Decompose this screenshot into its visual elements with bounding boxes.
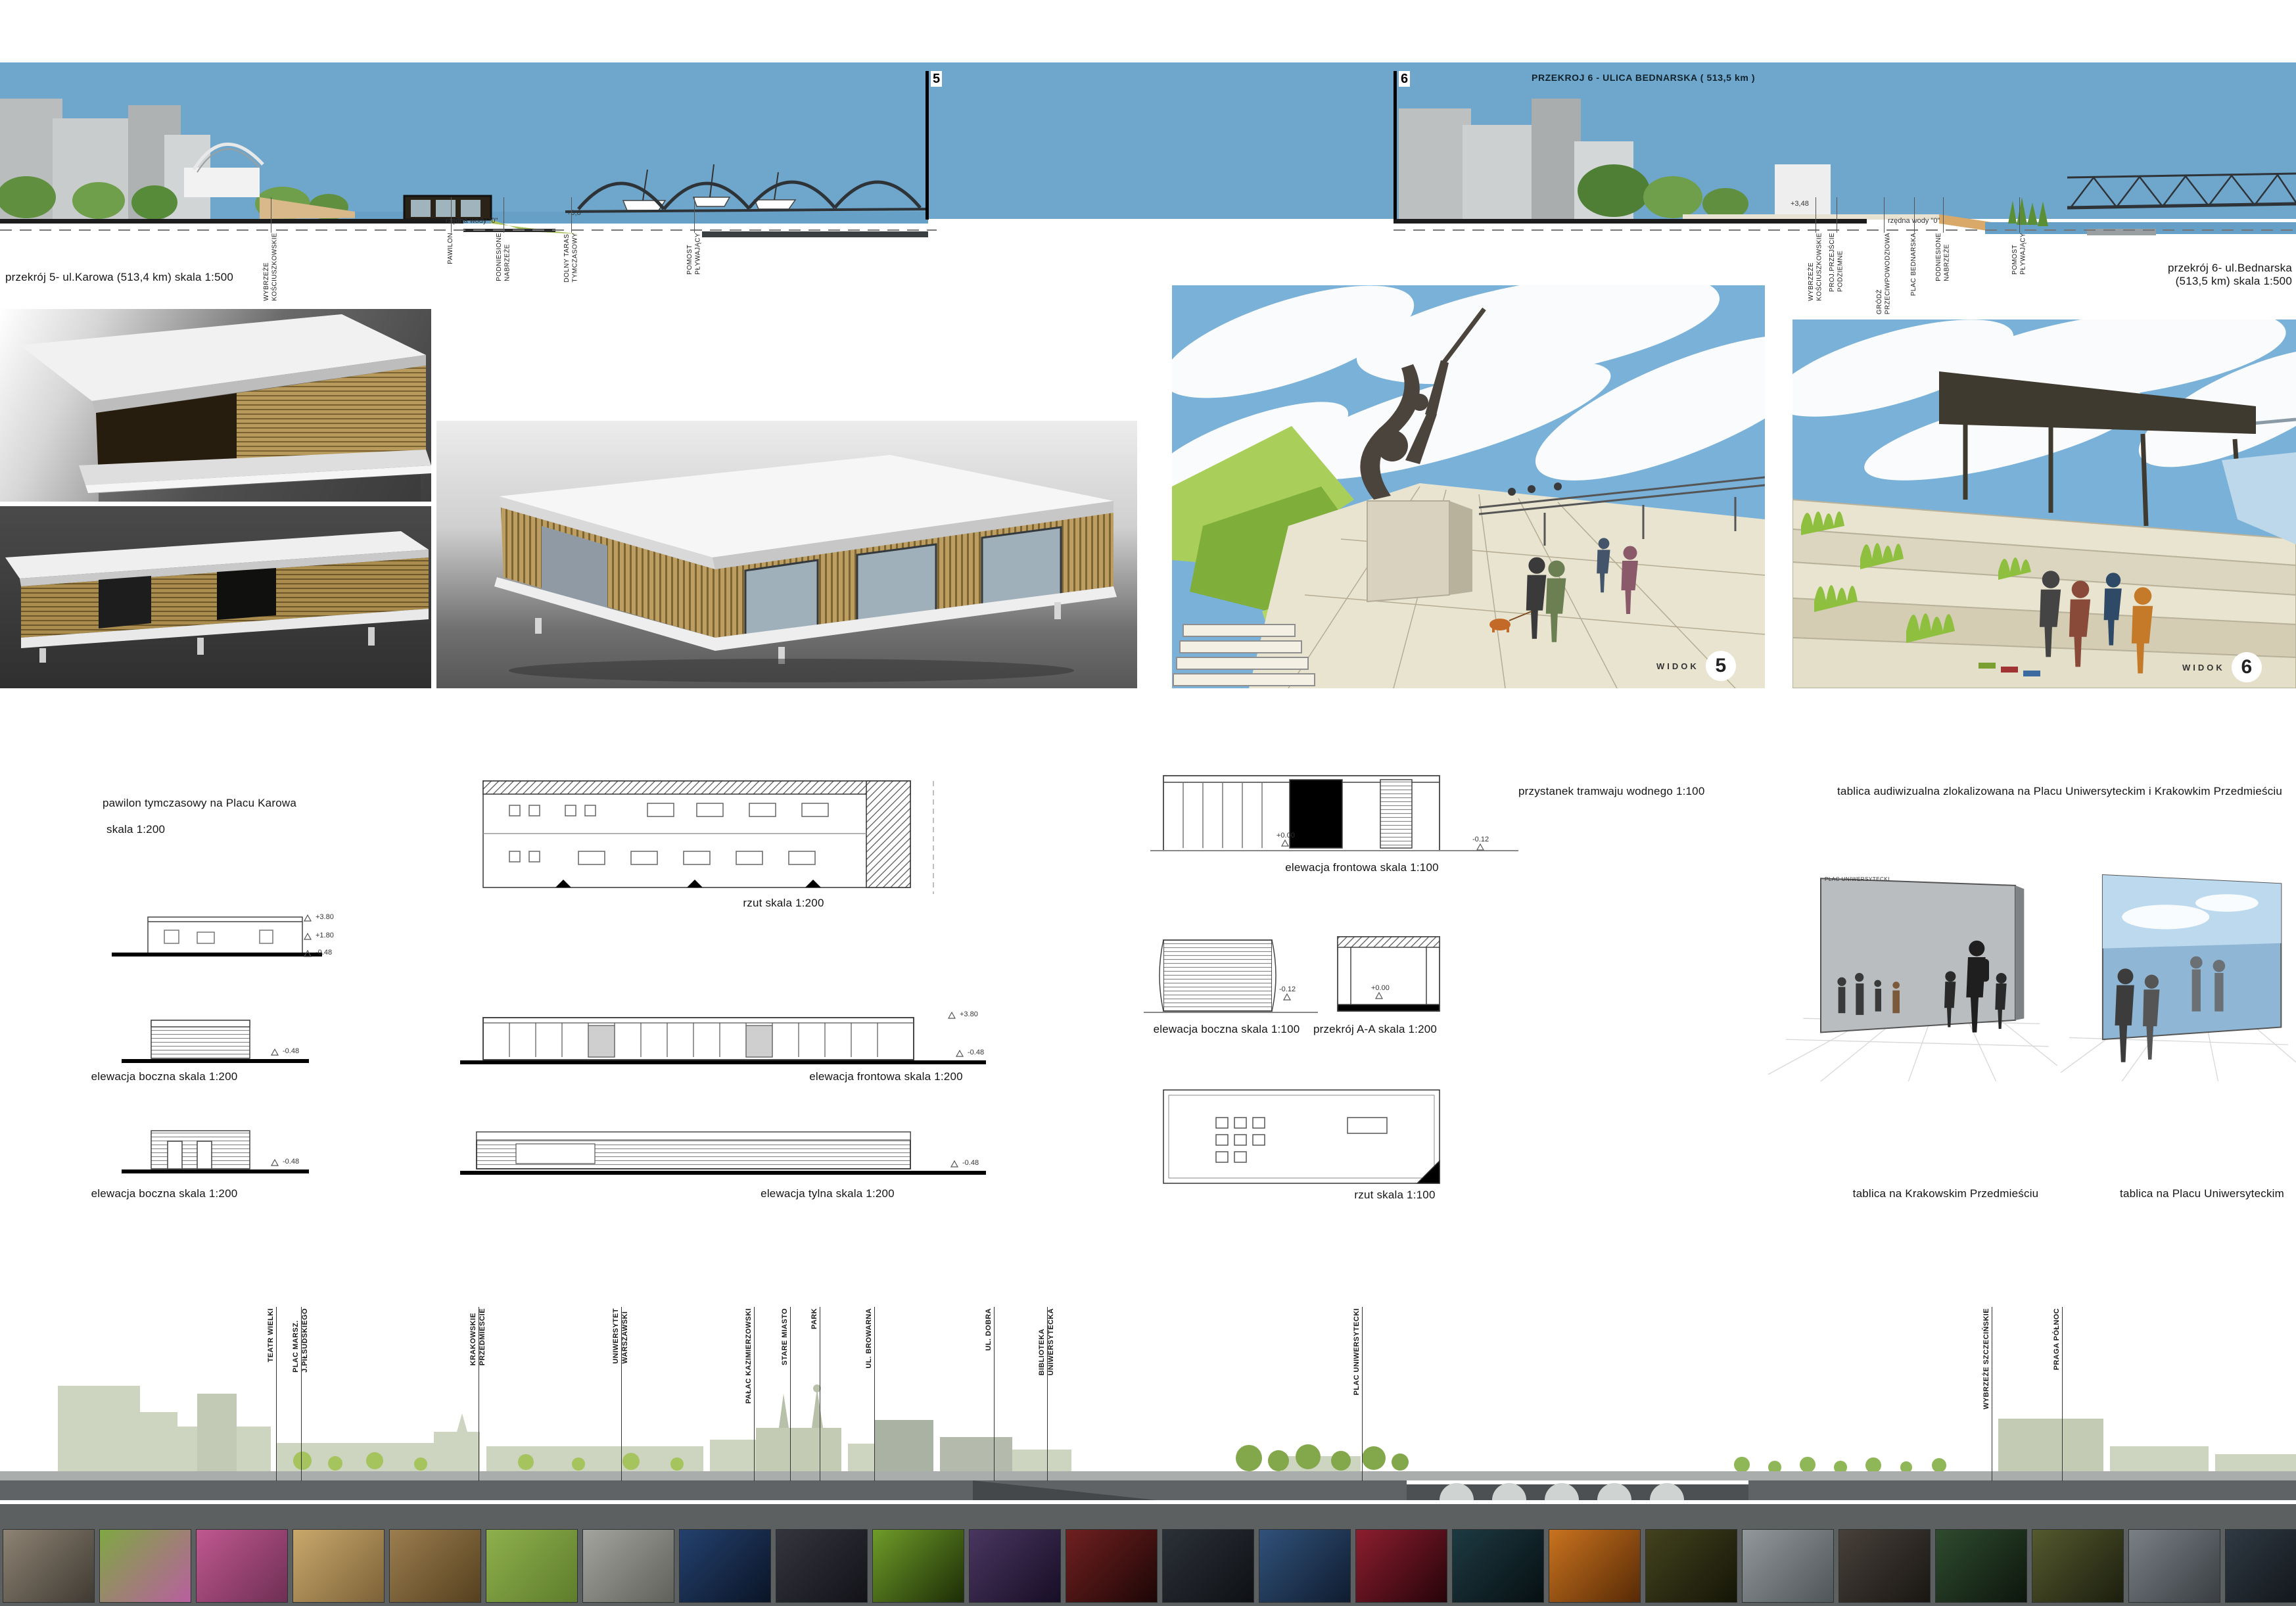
svg-text:+3.80: +3.80 (960, 1010, 978, 1018)
svg-text:+0.00: +0.00 (1371, 984, 1390, 992)
svg-text:-0.48: -0.48 (962, 1159, 979, 1167)
svg-text:-0.48: -0.48 (316, 949, 332, 957)
panorama-leader-label: WYBRZEŻE SZCZECIŃSKIE (1982, 1307, 2002, 1481)
tablica-left-illustration: PLAC UNIWERSYTECKI (1768, 864, 2057, 1081)
leader-text: GRÓDŻ PRZECIWPOWODZIOWA (1876, 233, 1892, 314)
filmstrip-thumbnail (969, 1529, 1061, 1603)
leader-line (1837, 197, 1837, 233)
section-6-level-note: +3,48 (1791, 200, 1809, 208)
leader-text: UL. BROWARNA (865, 1308, 874, 1369)
filmstrip-thumbnail (1259, 1529, 1351, 1603)
leader-line (451, 197, 452, 233)
svg-text:-0.48: -0.48 (968, 1049, 984, 1056)
section-6-caption-line1: przekrój 6- ul.Bednarska (2168, 262, 2292, 275)
filmstrip-thumbnail (1549, 1529, 1641, 1603)
leader-line (754, 1307, 755, 1481)
tablica-board-label: PLAC UNIWERSYTECKI (1825, 876, 1890, 882)
leader-line (571, 197, 572, 233)
caption-przekroj-aa: przekrój A-A skala 1:200 (1277, 1023, 1474, 1036)
section-leader-label: PODNIESIONE NABRZEŻE (1935, 197, 1952, 281)
section-leader-label: PODNIESIONE NABRZEŻE (496, 197, 512, 281)
leader-line (1362, 1307, 1363, 1481)
caption-boczna-1: elewacja boczna skala 1:200 (66, 1070, 263, 1083)
leader-line (2019, 197, 2020, 233)
leader-line (790, 1307, 791, 1481)
view-6-label: WIDOK (2182, 663, 2225, 673)
filmstrip-thumbnail (196, 1529, 288, 1603)
panorama-leader-label: PLAC MARSZ. J.PIŁSUDSKIEGO (292, 1307, 312, 1481)
section-leader-label: POMOST PŁYWAJĄCY (686, 197, 703, 275)
competition-board: { "section5": { "marker": "5", "caption"… (0, 0, 2296, 1606)
section-leader-label: PROJ.PRZEJŚCIE PODZIEMNE (1829, 197, 1845, 292)
filmstrip-band (0, 1504, 2296, 1606)
filmstrip-thumbnail (486, 1529, 578, 1603)
section-leader-label: PLAC BEDNARSKA (1906, 197, 1923, 296)
panorama-leader-label: UL. BROWARNA (865, 1307, 885, 1481)
caption-frontowa-200: elewacja frontowa skala 1:200 (787, 1070, 985, 1083)
panorama-leader-label: UL. DOBRA (985, 1307, 1004, 1481)
leader-line (276, 1307, 277, 1481)
panorama-leader-label: PLAC UNIWERSYTECKI (1353, 1307, 1372, 1481)
section-6-caption-line2: (513,5 km) skala 1:500 (2168, 275, 2292, 288)
leader-text: PLAC UNIWERSYTECKI (1353, 1308, 1362, 1395)
leader-text: POMOST PŁYWAJĄCY (2011, 233, 2028, 275)
view-6-tag: WIDOK 6 (2182, 652, 2262, 682)
section-leader-label: POMOST PŁYWAJĄCY (2011, 197, 2028, 275)
filmstrip-thumbnail (679, 1529, 771, 1603)
leader-text: WYBRZEŻE KOŚCIUSZKOWSKIE (263, 233, 279, 301)
filmstrip-thumbnail (1645, 1529, 1737, 1603)
section-5-caption: przekrój 5- ul.Karowa (513,4 km) skala 1… (5, 271, 233, 284)
pavilion-render-side (0, 506, 431, 688)
leader-line (694, 197, 695, 233)
filmstrip-thumbnail (1452, 1529, 1544, 1603)
filmstrip-thumbnail (1839, 1529, 1931, 1603)
leader-text: PARK (810, 1308, 820, 1329)
leader-text: BIBLIOTEKA UNIWERSYTECKA (1038, 1308, 1056, 1375)
pavilion-render-perspective (436, 421, 1137, 688)
filmstrip-thumbnail (293, 1529, 385, 1603)
filmstrip-thumbnail (3, 1529, 95, 1603)
panorama-leader-label: PARK (810, 1307, 830, 1481)
leader-line (874, 1307, 875, 1481)
leader-text: POMOST PŁYWAJĄCY (686, 233, 703, 275)
leader-text: PLAC MARSZ. J.PIŁSUDSKIEGO (292, 1308, 310, 1373)
leader-text: TEATR WIELKI (267, 1308, 276, 1362)
section-6-marker: 6 (1399, 71, 1410, 87)
filmstrip (3, 1529, 2296, 1603)
leader-text: PODNIESIONE NABRZEŻE (496, 233, 512, 281)
leader-text: PRAGA PÓŁNOC (2053, 1308, 2062, 1370)
leader-line (1992, 1307, 1992, 1481)
caption-tylna: elewacja tylna skala 1:200 (729, 1187, 926, 1200)
filmstrip-thumbnail (2225, 1529, 2296, 1603)
svg-text:-0.48: -0.48 (283, 1047, 299, 1055)
section-leader-label: WYBRZEŻE KOŚCIUSZKOWSKIE (1808, 197, 1824, 301)
section-6-caption: przekrój 6- ul.Bednarska (513,5 km) skal… (2168, 262, 2292, 288)
leader-text: UL. DOBRA (985, 1308, 994, 1351)
caption-frontowa-100: elewacja frontowa skala 1:100 (1263, 861, 1461, 874)
view-5-label: WIDOK (1656, 661, 1699, 671)
panorama-leader-label: TEATR WIELKI (267, 1307, 287, 1481)
section-6-marker-bar (1394, 71, 1397, 220)
section-5-marker-bar (925, 71, 929, 220)
caption-boczna-2: elewacja boczna skala 1:200 (66, 1187, 263, 1200)
panorama-leader-label: PAŁAC KAZIMIERZOWSKI (745, 1307, 764, 1481)
section-6-title: PRZEKROJ 6 - ULICA BEDNARSKA ( 513,5 km … (1532, 72, 1755, 83)
filmstrip-thumbnail (389, 1529, 481, 1603)
filmstrip-thumbnail (1935, 1529, 2027, 1603)
leader-text: STARE MIASTO (781, 1308, 790, 1365)
leader-line (504, 197, 504, 233)
filmstrip-thumbnail (872, 1529, 964, 1603)
caption-tablica-left: tablica na Krakowskim Przedmieściu (1847, 1187, 2044, 1200)
leader-text: WYBRZEŻE KOŚCIUSZKOWSKIE (1808, 233, 1824, 301)
svg-text:+3.80: +3.80 (316, 913, 334, 921)
view-5-number: 5 (1706, 651, 1736, 681)
section-leader-label: PAWILON (447, 197, 456, 264)
leader-text: PODNIESIONE NABRZEŻE (1935, 233, 1952, 281)
filmstrip-thumbnail (2128, 1529, 2220, 1603)
city-panorama (0, 1282, 2296, 1505)
view-5-tag: WIDOK 5 (1656, 651, 1736, 681)
leader-line (2062, 1307, 2063, 1481)
leader-line (994, 1307, 995, 1481)
view-5-illustration (1172, 285, 1765, 688)
svg-text:-0.48: -0.48 (283, 1158, 299, 1166)
leader-line (1943, 197, 1944, 233)
leader-line (1816, 197, 1816, 233)
caption-rzut-100: rzut skala 1:100 (1296, 1189, 1493, 1202)
pavilion-render-corner (0, 309, 431, 502)
svg-text:+1.80: +1.80 (316, 932, 334, 939)
leader-line (1884, 197, 1885, 233)
svg-text:-0.12: -0.12 (1279, 985, 1296, 993)
panorama-leader-label: BIBLIOTEKA UNIWERSYTECKA (1038, 1307, 1058, 1481)
leader-line (1914, 197, 1915, 233)
section-leader-label: WYBRZEŻE KOŚCIUSZKOWSKIE (263, 197, 279, 301)
panorama-leader-label: UNIWERSYTET WARSZAWSKI (612, 1307, 632, 1481)
svg-text:+0.00: +0.00 (1277, 832, 1295, 839)
caption-tablica-right: tablica na Placu Uniwersyteckim (2103, 1187, 2296, 1200)
view-6-illustration (1792, 319, 2296, 688)
caption-rzut-200: rzut skala 1:200 (685, 897, 882, 910)
leader-text: PAŁAC KAZIMIERZOWSKI (745, 1308, 754, 1404)
section-5-drawing (0, 62, 940, 286)
filmstrip-thumbnail (99, 1529, 191, 1603)
tablica-right-illustration (2061, 864, 2296, 1081)
svg-text:-0.12: -0.12 (1472, 836, 1489, 843)
filmstrip-thumbnail (1162, 1529, 1254, 1603)
leader-text: DOLNY TARAS TYMCZASOWY (563, 233, 580, 283)
leader-line (820, 1307, 820, 1481)
section-leader-label: GRÓDŻ PRZECIWPOWODZIOWA (1876, 197, 1892, 314)
panorama-leader-label: PRAGA PÓŁNOC (2053, 1307, 2073, 1481)
leader-text: WYBRZEŻE SZCZECIŃSKIE (1982, 1308, 1992, 1409)
leader-text: KRAKOWSKIE PRZEDMIESCIE (469, 1308, 488, 1365)
filmstrip-thumbnail (1066, 1529, 1158, 1603)
filmstrip-thumbnail (2032, 1529, 2124, 1603)
leader-text: PROJ.PRZEJŚCIE PODZIEMNE (1829, 233, 1845, 292)
panorama-leader-label: KRAKOWSKIE PRZEDMIESCIE (469, 1307, 489, 1481)
filmstrip-thumbnail (582, 1529, 674, 1603)
filmstrip-thumbnail (1355, 1529, 1447, 1603)
panorama-leader-label: STARE MIASTO (781, 1307, 801, 1481)
leader-line (271, 197, 271, 233)
view-6-number: 6 (2232, 652, 2262, 682)
section-leader-label: DOLNY TARAS TYMCZASOWY (563, 197, 580, 283)
section-5-marker: 5 (931, 71, 942, 87)
leader-text: PLAC BEDNARSKA (1910, 233, 1919, 296)
leader-text: UNIWERSYTET WARSZAWSKI (612, 1308, 630, 1363)
filmstrip-thumbnail (1742, 1529, 1834, 1603)
leader-text: PAWILON (447, 233, 456, 264)
filmstrip-thumbnail (776, 1529, 868, 1603)
